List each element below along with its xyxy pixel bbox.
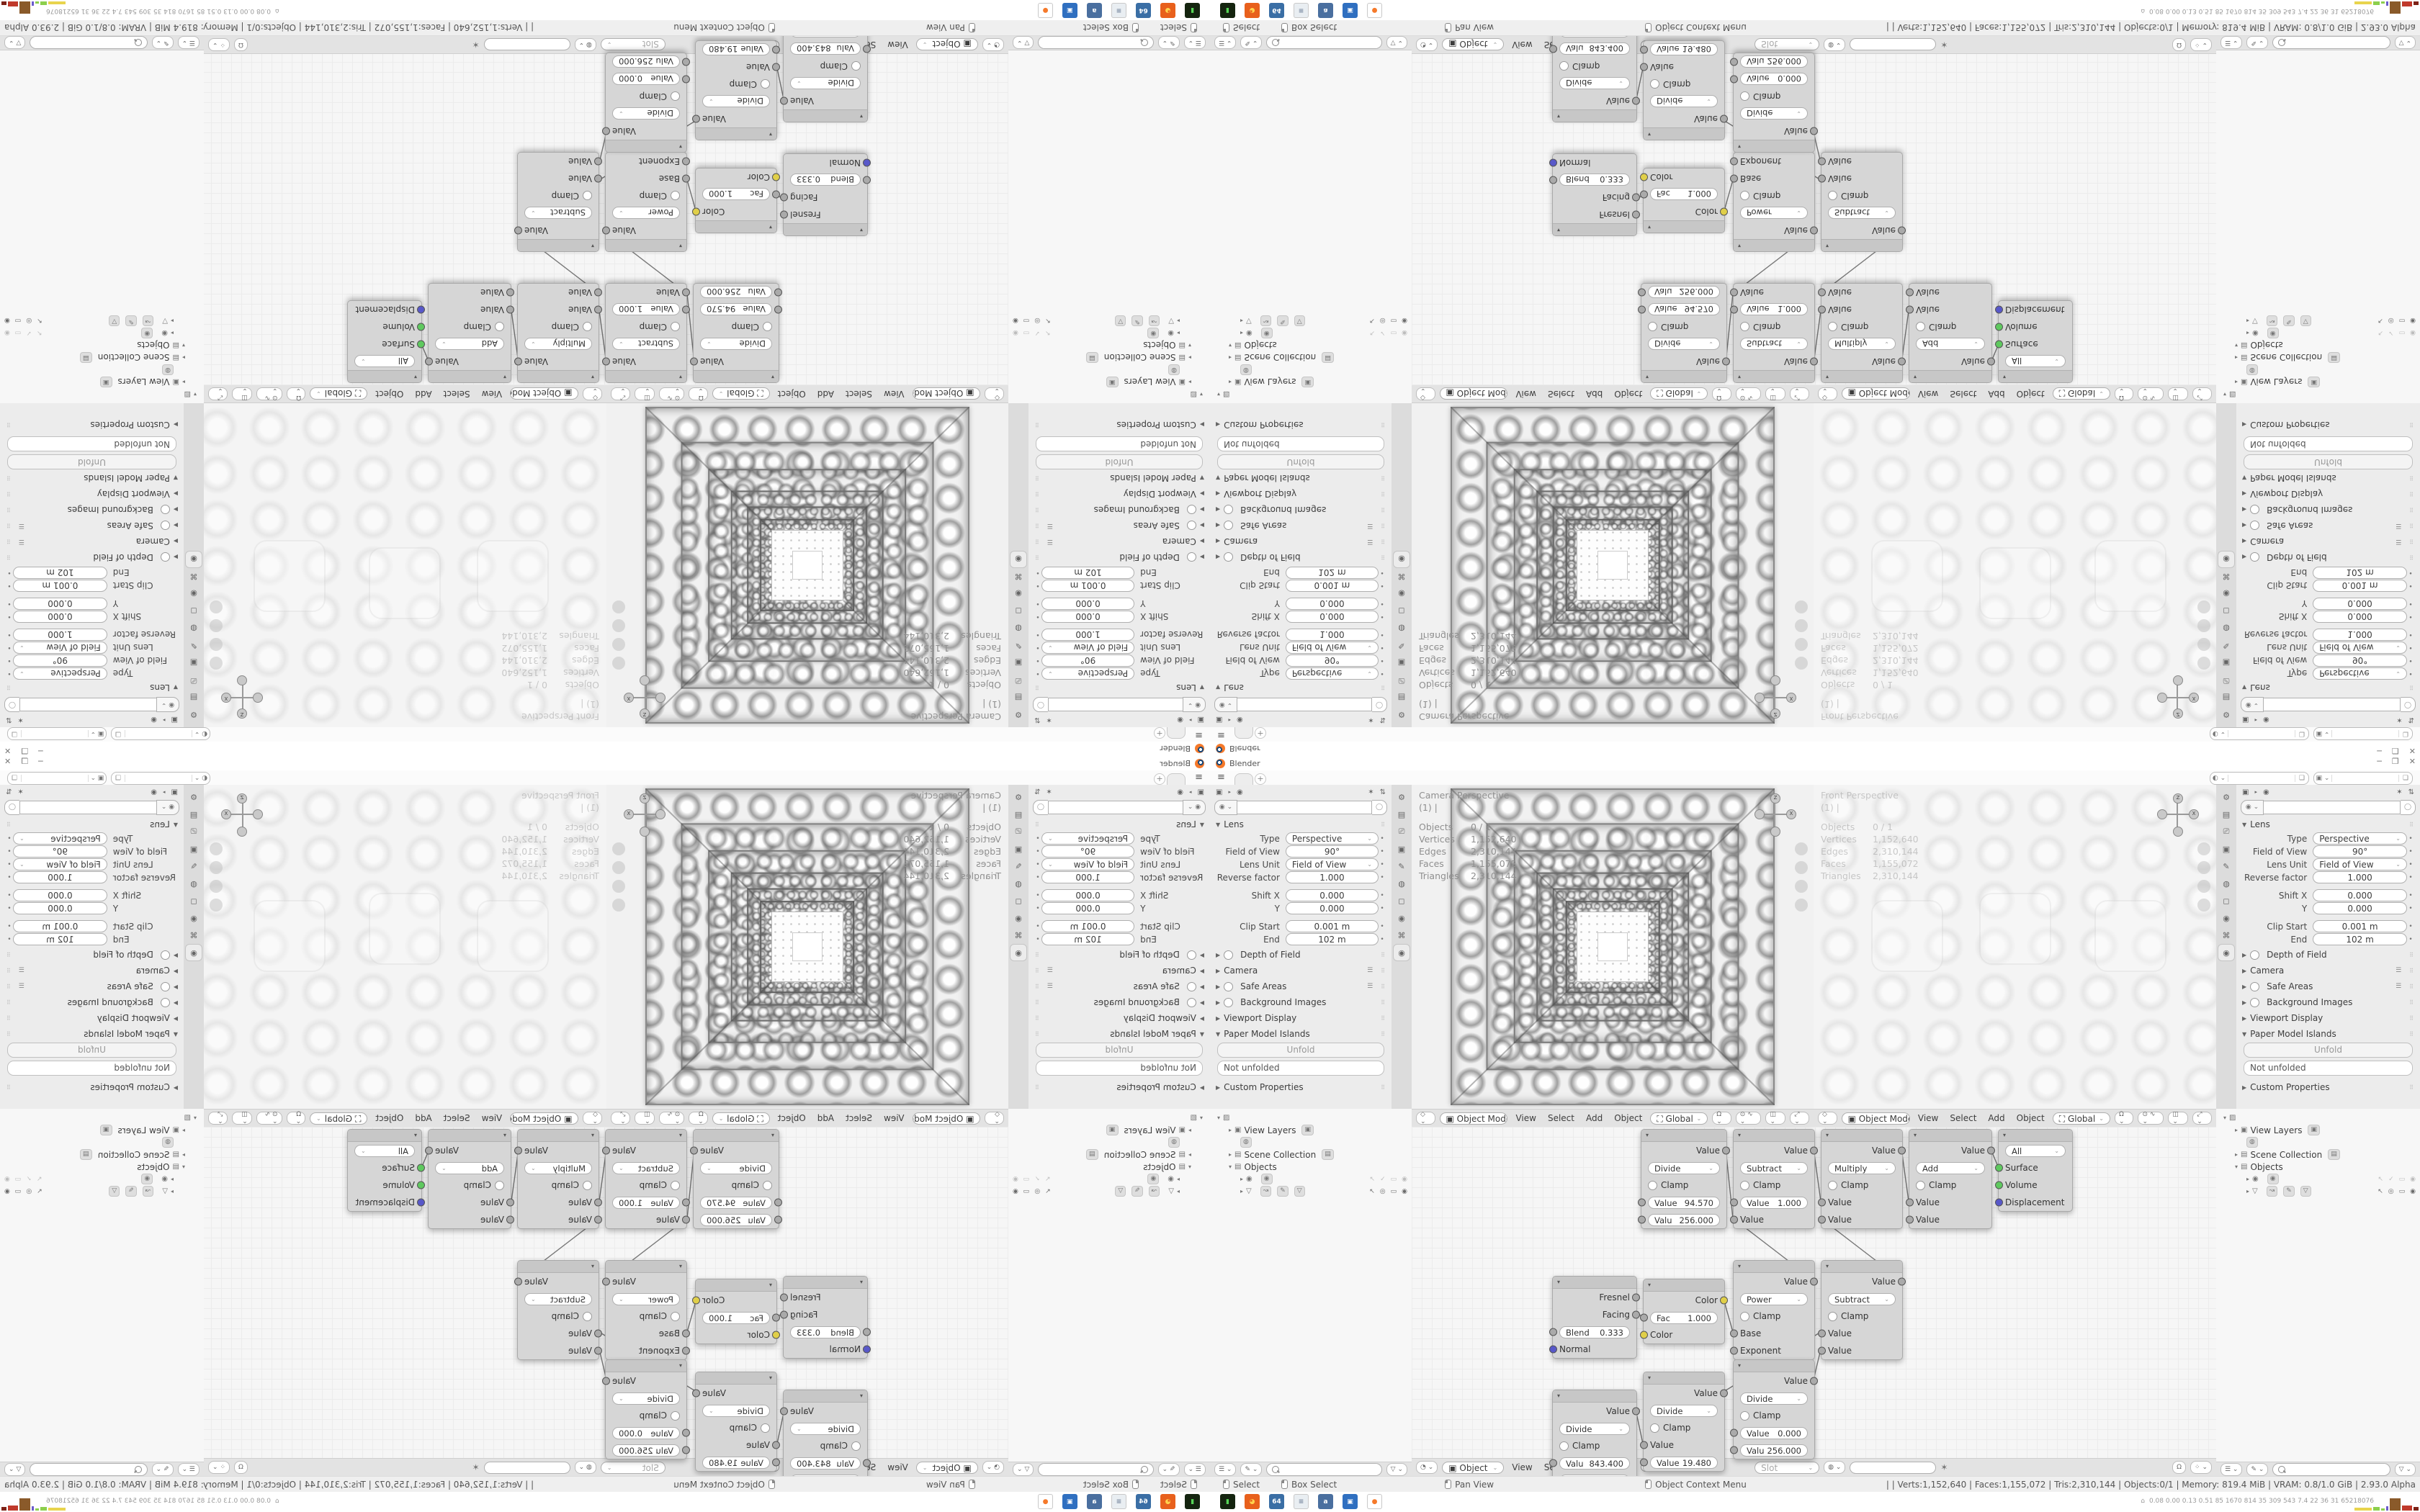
- panel-paper-model-islands[interactable]: ▼Paper Model Islands⠿: [1210, 471, 1391, 487]
- floppy64-icon[interactable]: 64: [1269, 3, 1284, 18]
- properties-tab-output[interactable]: ⎚: [1394, 824, 1410, 840]
- menu-view[interactable]: View: [1914, 1113, 1942, 1123]
- input-socket[interactable]: [594, 158, 602, 166]
- properties-tab-render[interactable]: ▤: [1394, 690, 1410, 706]
- input-socket[interactable]: [594, 175, 602, 183]
- number-field[interactable]: 0.000: [13, 889, 107, 901]
- interaction-mode-dropdown[interactable]: ▣ Object Mode⌄: [1440, 1112, 1508, 1125]
- panel-custom-properties[interactable]: ▶Custom Properties⠿: [1028, 418, 1210, 433]
- material-browse-dropdown[interactable]: ◍ ⌄: [575, 1461, 596, 1474]
- input-socket[interactable]: [1730, 1347, 1738, 1355]
- output-socket[interactable]: [1898, 1147, 1906, 1155]
- properties-tab-render[interactable]: ▤: [2218, 806, 2234, 822]
- camera-view-icon[interactable]: ⤢ ⌄: [1790, 387, 1809, 400]
- panel-camera[interactable]: ▶Camera☰⠿: [1210, 962, 1391, 978]
- outliner-row[interactable]: ▸◉◉↖✓▭◉: [1210, 1173, 1412, 1185]
- node-math-subtract-1[interactable]: ▾ValueSubtract⌄ClampValue1.000Value: [605, 1129, 687, 1229]
- terminal-icon[interactable]: ▮: [1220, 3, 1235, 18]
- clamp-checkbox[interactable]: [1916, 1181, 1925, 1190]
- number-field[interactable]: 102 m: [1286, 933, 1379, 945]
- input-socket[interactable]: [682, 175, 690, 183]
- menu-hamburger-icon[interactable]: ≡: [1191, 730, 1203, 739]
- transform-orientation-dropdown[interactable]: ⛶ Global⌄: [1650, 1112, 1708, 1125]
- properties-tab-render[interactable]: ▤: [1010, 806, 1026, 822]
- viewport-nav-buttons[interactable]: [612, 600, 625, 670]
- outliner-row[interactable]: ◍: [1210, 364, 1412, 376]
- number-field[interactable]: 102 m: [1041, 567, 1134, 579]
- shader-editor[interactable]: ▾ValueDivide⌄ClampValue94.570Valu256.000…: [204, 36, 1008, 385]
- input-socket[interactable]: [682, 1330, 690, 1338]
- clamp-checkbox[interactable]: [1648, 1181, 1657, 1190]
- outliner-row[interactable]: ▾▤Objects: [0, 1161, 204, 1173]
- properties-tab-constraints[interactable]: ⌘: [1010, 927, 1026, 943]
- properties-tab-output[interactable]: ⎚: [1010, 672, 1026, 688]
- node-invert[interactable]: ▾ColorFac1.000Color: [695, 168, 777, 233]
- snap-icon[interactable]: Ω ⌄: [2115, 1112, 2134, 1125]
- operation-dropdown[interactable]: Add⌄: [1916, 1162, 1985, 1174]
- output-socket[interactable]: [780, 211, 788, 219]
- viewport-camera[interactable]: Camera Perspective (1) | Objects0 / 1Ver…: [606, 785, 1008, 1127]
- clamp-checkbox[interactable]: [495, 323, 504, 332]
- properties-tab-view-layer[interactable]: ▣: [186, 655, 202, 671]
- panel-viewport-display[interactable]: ▶Viewport Display⠿: [0, 1009, 184, 1025]
- operation-dropdown[interactable]: Subtract⌄: [1828, 1293, 1896, 1305]
- properties-tab-constraints[interactable]: ⌘: [1394, 569, 1410, 585]
- number-field[interactable]: 102 m: [1286, 567, 1379, 579]
- input-socket[interactable]: [1730, 175, 1738, 183]
- operation-dropdown[interactable]: Subtract⌄: [612, 338, 680, 351]
- panel-camera[interactable]: ▶Camera☰⠿: [1028, 534, 1210, 550]
- output-socket[interactable]: [602, 1278, 610, 1286]
- workspace-tab[interactable]: [1167, 726, 1186, 739]
- value-field[interactable]: Fac1.000: [1650, 1312, 1718, 1324]
- operation-dropdown[interactable]: Divide⌄: [1740, 1392, 1808, 1405]
- clamp-checkbox[interactable]: [1740, 1181, 1749, 1190]
- minimize-button[interactable]: ─: [2377, 746, 2382, 755]
- node-math-multiply[interactable]: ▾ValueMultiply⌄ClampValueValue: [1821, 283, 1903, 383]
- properties-tab-object[interactable]: ◻: [1394, 603, 1410, 619]
- operation-dropdown[interactable]: Add⌄: [435, 338, 504, 351]
- outliner-row[interactable]: ▸◉◉↖✓▭◉: [2216, 1173, 2420, 1185]
- operation-dropdown[interactable]: Subtract⌄: [524, 1293, 592, 1305]
- material-browse-dropdown[interactable]: ◍ ⌄: [575, 38, 596, 51]
- number-field[interactable]: 102 m: [2313, 933, 2407, 945]
- outliner-row[interactable]: ▸◉◉↖✓▭◉: [0, 327, 204, 339]
- outliner-row[interactable]: ▸▽↝✎▽↖◎▭◉: [0, 1185, 204, 1197]
- input-socket[interactable]: [774, 289, 782, 297]
- operation-dropdown[interactable]: Power⌄: [612, 207, 680, 220]
- menu-object[interactable]: Object: [372, 389, 407, 399]
- dropdown[interactable]: Field of View⌄: [13, 642, 107, 654]
- transform-orientation-dropdown[interactable]: ⛶ Global⌄: [1650, 388, 1708, 400]
- clamp-checkbox[interactable]: [583, 192, 592, 201]
- outliner-row[interactable]: ▸▣View Layers▣: [0, 376, 204, 388]
- visibility-toggles[interactable]: ↖◎▭◉: [1013, 318, 1051, 325]
- input-socket[interactable]: [772, 1331, 780, 1339]
- value-field[interactable]: Value0.000: [1740, 1427, 1808, 1439]
- input-socket[interactable]: [1995, 341, 2003, 348]
- node-math-subtract-2[interactable]: ▾ValueSubtract⌄ClampValueValue: [517, 152, 599, 252]
- input-socket[interactable]: [594, 1330, 602, 1338]
- firefox-icon[interactable]: ◕: [1245, 3, 1260, 18]
- transform-orientation-dropdown[interactable]: ⛶ Global⌄: [310, 1112, 367, 1125]
- node-math-divide-2[interactable]: ▾ValueDivide⌄ClampValu843.400Valu256.000: [783, 1390, 868, 1476]
- operation-dropdown[interactable]: Subtract⌄: [1740, 1162, 1808, 1174]
- properties-tab-output[interactable]: ⎚: [2218, 672, 2234, 688]
- output-socket[interactable]: [1720, 1297, 1728, 1305]
- output-socket[interactable]: [1898, 227, 1906, 235]
- panel-background-images[interactable]: ▶Background Images⠿: [1028, 994, 1210, 1009]
- panel-background-images[interactable]: ▶Background Images⠿: [1210, 994, 1391, 1009]
- properties-tab-view-layer[interactable]: ▣: [1010, 841, 1026, 857]
- operation-dropdown[interactable]: Divide⌄: [1559, 1423, 1630, 1435]
- input-socket[interactable]: [1640, 46, 1648, 54]
- operation-dropdown[interactable]: Power⌄: [1740, 1293, 1808, 1305]
- properties-tab-constraints[interactable]: ⌘: [1010, 569, 1026, 585]
- input-socket[interactable]: [1730, 306, 1738, 314]
- panel-background-images[interactable]: ▶Background Images⠿: [1210, 503, 1391, 518]
- properties-tab-physics[interactable]: ◉: [1394, 586, 1410, 602]
- menu-view[interactable]: View: [884, 40, 911, 50]
- camera-view-icon[interactable]: ⤢ ⌄: [611, 387, 630, 400]
- filter-icon[interactable]: ⇅: [1380, 788, 1386, 796]
- panel-toggle[interactable]: [1187, 505, 1196, 515]
- visibility-toggles[interactable]: ↖◎▭◉: [1369, 318, 1407, 325]
- panel-depth-of-field[interactable]: ▶Depth of Field⠿: [0, 550, 184, 566]
- properties-tab-output[interactable]: ⎚: [1394, 672, 1410, 688]
- number-field[interactable]: 1.000: [1041, 629, 1134, 641]
- transform-orientation-dropdown[interactable]: ⛶ Global⌄: [2053, 1112, 2110, 1125]
- input-socket[interactable]: [1638, 289, 1646, 297]
- menu-object[interactable]: Object: [2013, 1113, 2048, 1123]
- value-field[interactable]: Valu256.000: [700, 1214, 772, 1226]
- filter-by-dropdown[interactable]: ✎ ⌄: [1240, 37, 1262, 50]
- output-socket[interactable]: [602, 1377, 610, 1385]
- outliner-row[interactable]: ▸◉◉↖✓▭◉: [1008, 327, 1210, 339]
- input-socket[interactable]: [863, 1328, 871, 1336]
- panel-menu-icon[interactable]: ☰: [2396, 967, 2401, 974]
- outliner-row[interactable]: ▾▨: [2216, 1112, 2420, 1124]
- viewport-front[interactable]: Front Perspective (1) | Objects0 / 1Vert…: [204, 785, 606, 1127]
- clamp-checkbox[interactable]: [763, 1181, 772, 1190]
- input-socket[interactable]: [417, 1199, 425, 1207]
- clamp-checkbox[interactable]: [1828, 1312, 1837, 1321]
- value-field[interactable]: Value94.570: [700, 304, 772, 316]
- node-invert[interactable]: ▾ColorFac1.000Color: [1643, 1279, 1725, 1344]
- shader-editor[interactable]: ▾ValueDivide⌄ClampValue94.570Valu256.000…: [1412, 36, 2216, 385]
- panel-viewport-display[interactable]: ▶Viewport Display⠿: [1028, 487, 1210, 503]
- unfold-button[interactable]: Unfold: [2244, 454, 2413, 469]
- viewport-nav-buttons[interactable]: [1795, 600, 1808, 670]
- operation-dropdown[interactable]: Subtract⌄: [524, 207, 592, 220]
- interaction-mode-dropdown[interactable]: ▣ Object Mode⌄: [913, 388, 981, 400]
- slot-dropdown[interactable]: Slot⌄: [601, 1462, 665, 1474]
- node-math-divide-3[interactable]: ▾ValueDivide⌄ClampValueValue19.480: [1643, 40, 1725, 140]
- outliner-row[interactable]: ▾▤Objects: [1210, 339, 1412, 351]
- properties-tab-physics[interactable]: ◉: [1394, 910, 1410, 926]
- pin-icon[interactable]: ✶: [2396, 788, 2402, 796]
- shader-editor[interactable]: ▾ValueDivide⌄ClampValue94.570Valu256.000…: [204, 1127, 1008, 1476]
- outliner-row[interactable]: ▾▤Objects: [2216, 339, 2420, 351]
- display-mode-dropdown[interactable]: ☰ ⌄: [1184, 1463, 1206, 1476]
- navigation-gizmo[interactable]: Z X: [625, 677, 665, 717]
- outliner-row[interactable]: ▸▤Scene Collection▤: [1210, 351, 1412, 364]
- panel-paper-model-islands[interactable]: ▼Paper Model Islands⠿: [0, 471, 184, 487]
- node-math-subtract-2[interactable]: ▾ValueSubtract⌄ClampValueValue: [1821, 1260, 1903, 1360]
- menu-object[interactable]: Object: [774, 389, 810, 399]
- panel-paper-model-islands[interactable]: ▼Paper Model Islands⠿: [2236, 1025, 2420, 1041]
- number-field[interactable]: 1.000: [13, 871, 107, 883]
- input-socket[interactable]: [1549, 1459, 1557, 1467]
- outliner-search-input[interactable]: [2272, 37, 2390, 50]
- unfold-button[interactable]: Unfold: [1036, 454, 1203, 469]
- output-socket[interactable]: [1810, 1377, 1818, 1385]
- value-field[interactable]: Valu256.000: [1648, 1214, 1720, 1226]
- output-socket[interactable]: [1722, 358, 1730, 366]
- output-socket[interactable]: [1720, 1390, 1728, 1398]
- node-math-power[interactable]: ▾ValuePower⌄ClampBaseExponent: [605, 152, 687, 252]
- output-socket[interactable]: [1632, 1408, 1640, 1416]
- filter-funnel-dropdown[interactable]: ▽ ⌄: [1013, 37, 1034, 50]
- operation-dropdown[interactable]: Add⌄: [435, 1162, 504, 1174]
- terminal-icon[interactable]: ▮: [1185, 1494, 1200, 1509]
- panel-lens[interactable]: ▼Lens⠿: [2236, 680, 2420, 696]
- dropdown[interactable]: Field of View⌄: [1041, 642, 1134, 654]
- restore-button[interactable]: ❐: [2392, 757, 2399, 766]
- camera-id-block[interactable]: ◉ ⌄◯: [2241, 698, 2416, 711]
- viewport-nav-buttons[interactable]: [2197, 842, 2210, 912]
- outliner-row[interactable]: ▾▤Objects: [0, 339, 204, 351]
- node-math-subtract-1[interactable]: ▾ValueSubtract⌄ClampValue1.000Value: [605, 283, 687, 383]
- filter-funnel-dropdown[interactable]: ▽ ⌄: [4, 1463, 25, 1476]
- proportional-edit-icon[interactable]: ⊙ ∿ ⌄: [2138, 1112, 2164, 1125]
- shader-mode-dropdown[interactable]: ▣ Object⌄: [1442, 39, 1504, 51]
- outliner-row[interactable]: ◍: [1210, 1136, 1412, 1148]
- outliner-row[interactable]: ▸▣View Layers▣: [1008, 376, 1210, 388]
- input-socket[interactable]: [506, 289, 514, 297]
- input-socket[interactable]: [772, 1441, 780, 1449]
- node-math-divide-1[interactable]: ▾ValueDivide⌄ClampValue94.570Valu256.000: [693, 1129, 779, 1229]
- value-field[interactable]: Value1.000: [1740, 1197, 1808, 1209]
- input-socket[interactable]: [417, 1182, 425, 1189]
- snap-target-dropdown[interactable]: ⁘ ⌄: [208, 1461, 230, 1474]
- panel-depth-of-field[interactable]: ▶Depth of Field⠿: [2236, 946, 2420, 962]
- value-field[interactable]: Valu843.400: [790, 43, 861, 55]
- value-field[interactable]: Value1.000: [612, 1197, 680, 1209]
- properties-tab-object[interactable]: ◻: [2218, 893, 2234, 909]
- dropdown[interactable]: Perspective⌄: [13, 832, 107, 845]
- pin-icon[interactable]: ✶: [472, 1462, 480, 1472]
- input-socket[interactable]: [1549, 1328, 1557, 1336]
- properties-tab-render[interactable]: ▤: [2218, 690, 2234, 706]
- mode-icon-dropdown[interactable]: ◇ ⌄: [1818, 1112, 1837, 1125]
- value-field[interactable]: Valu256.000: [612, 56, 680, 68]
- input-socket[interactable]: [1995, 1164, 2003, 1172]
- number-field[interactable]: 90°: [2313, 654, 2407, 667]
- overlays-icon[interactable]: ◫ ⌄: [1765, 387, 1785, 400]
- output-socket[interactable]: [1720, 115, 1728, 123]
- node-invert[interactable]: ▾ColorFac1.000Color: [695, 1279, 777, 1344]
- input-socket[interactable]: [682, 58, 690, 66]
- output-socket[interactable]: [602, 127, 610, 135]
- outliner-row[interactable]: ▸▽↝✎▽↖◎▭◉: [0, 315, 204, 327]
- terminal-icon[interactable]: ▮: [1220, 1494, 1235, 1509]
- interaction-mode-dropdown[interactable]: ▣ Object Mode⌄: [1842, 1112, 1910, 1125]
- panel-menu-icon[interactable]: ☰: [19, 983, 24, 990]
- dropdown[interactable]: Perspective⌄: [1286, 667, 1379, 680]
- value-field[interactable]: Value0.000: [612, 1427, 680, 1439]
- properties-tab-scene[interactable]: ✎: [1394, 638, 1410, 654]
- display-mode-dropdown[interactable]: ☰ ⌄: [1214, 37, 1236, 50]
- menu-hamburger-icon[interactable]: ≡: [1191, 773, 1203, 782]
- output-socket[interactable]: [1898, 1278, 1906, 1286]
- visibility-toggles[interactable]: ↖◎▭◉: [1369, 1188, 1407, 1195]
- node-math-divide-2[interactable]: ▾ValueDivide⌄ClampValu843.400Valu256.000: [783, 36, 868, 122]
- shader-mode-dropdown[interactable]: ▣ Object⌄: [1442, 1462, 1504, 1474]
- number-field[interactable]: 0.000: [13, 611, 107, 623]
- output-socket[interactable]: [780, 1408, 788, 1416]
- menu-hamburger-icon[interactable]: ≡: [1217, 730, 1229, 739]
- transform-orientation-dropdown[interactable]: ⛶ Global⌄: [2053, 388, 2110, 400]
- camera-view-icon[interactable]: ⤢ ⌄: [2192, 1112, 2212, 1125]
- outliner-row[interactable]: ◍: [2216, 364, 2420, 376]
- number-field[interactable]: 0.001 m: [2313, 580, 2407, 592]
- properties-tab-camera-data[interactable]: ◉: [1010, 945, 1026, 960]
- panel-safe-areas[interactable]: ▶Safe Areas☰⠿: [1028, 978, 1210, 994]
- output-socket[interactable]: [1810, 1278, 1818, 1286]
- properties-tab-tool[interactable]: ⚙: [2218, 707, 2234, 723]
- number-field[interactable]: 1.000: [1286, 629, 1379, 641]
- menu-add[interactable]: Add: [411, 389, 435, 399]
- node-math-divide-4[interactable]: ▾ValueDivide⌄ClampValue0.000Valu256.000: [605, 53, 687, 153]
- navigation-gizmo[interactable]: Z X: [2157, 677, 2197, 717]
- camera-view-icon[interactable]: ⤢ ⌄: [611, 1112, 630, 1125]
- node-layer-weight[interactable]: ▾FresnelFacingBlend0.333Normal: [783, 1276, 868, 1359]
- filter-funnel-dropdown[interactable]: ▽ ⌄: [2395, 37, 2416, 50]
- number-field[interactable]: 0.000: [13, 598, 107, 610]
- output-socket[interactable]: [425, 1147, 433, 1155]
- node-math-divide-3[interactable]: ▾ValueDivide⌄ClampValueValue19.480: [695, 40, 777, 140]
- viewport-nav-buttons[interactable]: [210, 600, 223, 670]
- minimize-button[interactable]: ─: [2377, 757, 2382, 766]
- panel-depth-of-field[interactable]: ▶Depth of Field⠿: [1210, 550, 1391, 566]
- operation-dropdown[interactable]: Multiply⌄: [524, 338, 592, 351]
- node-material-output[interactable]: ▾All⌄SurfaceVolumeDisplacement: [347, 1129, 422, 1212]
- clamp-checkbox[interactable]: [1740, 192, 1749, 201]
- menu-object[interactable]: Object: [1610, 1113, 1646, 1123]
- outliner-row[interactable]: ▸▽↝✎▽↖◎▭◉: [2216, 315, 2420, 327]
- filter-icon[interactable]: ⇅: [1034, 788, 1040, 796]
- close-button[interactable]: ✕: [4, 746, 11, 755]
- node-math-subtract-1[interactable]: ▾ValueSubtract⌄ClampValue1.000Value: [1733, 1129, 1815, 1229]
- properties-tab-tool[interactable]: ⚙: [1010, 707, 1026, 723]
- dropdown[interactable]: Perspective⌄: [1286, 832, 1379, 845]
- firefox-icon[interactable]: ◕: [1160, 3, 1175, 18]
- number-field[interactable]: 0.000: [1286, 598, 1379, 610]
- output-socket[interactable]: [1632, 211, 1640, 219]
- number-field[interactable]: 0.000: [13, 902, 107, 914]
- material-name-field[interactable]: [484, 39, 570, 51]
- operation-dropdown[interactable]: Divide⌄: [1559, 78, 1630, 90]
- outliner-row[interactable]: ◍: [2216, 1136, 2420, 1148]
- clamp-checkbox[interactable]: [1740, 92, 1749, 102]
- outliner-row[interactable]: ◍: [0, 364, 204, 376]
- panel-lens[interactable]: ▼Lens⠿: [1028, 816, 1210, 832]
- proportional-edit-icon[interactable]: ⊙ ∿ ⌄: [1736, 1112, 1762, 1125]
- visibility-toggles[interactable]: ↖✓▭◉: [1013, 330, 1050, 337]
- clamp-checkbox[interactable]: [583, 1181, 592, 1190]
- properties-tab-world[interactable]: ◍: [186, 876, 202, 891]
- unfold-button[interactable]: Unfold: [1217, 454, 1384, 469]
- camera-id-block[interactable]: ◉ ⌄◯: [1214, 698, 1387, 711]
- filter-icon[interactable]: ⇅: [6, 716, 12, 724]
- input-socket[interactable]: [1640, 1441, 1648, 1449]
- panel-toggle[interactable]: [161, 950, 170, 960]
- operation-dropdown[interactable]: Power⌄: [1740, 207, 1808, 220]
- viewport-camera[interactable]: Camera Perspective (1) | Objects0 / 1Ver…: [1412, 785, 1814, 1127]
- clamp-checkbox[interactable]: [761, 80, 770, 89]
- panel-depth-of-field[interactable]: ▶Depth of Field⠿: [2236, 550, 2420, 566]
- input-socket[interactable]: [417, 1164, 425, 1172]
- navigation-gizmo[interactable]: Z X: [625, 795, 665, 835]
- output-socket[interactable]: [514, 227, 522, 235]
- panel-menu-icon[interactable]: ☰: [1047, 983, 1053, 990]
- shader-type-icon-dropdown[interactable]: ◔ ⌄: [982, 1461, 1004, 1474]
- outliner-row[interactable]: ▾▤Objects: [2216, 1161, 2420, 1173]
- clamp-checkbox[interactable]: [1648, 323, 1657, 332]
- camera-view-icon[interactable]: ⤢ ⌄: [1790, 1112, 1809, 1125]
- transform-orientation-dropdown[interactable]: ⛶ Global⌄: [712, 388, 770, 400]
- input-socket[interactable]: [863, 1459, 871, 1467]
- number-field[interactable]: 0.001 m: [1286, 920, 1379, 932]
- input-socket[interactable]: [1549, 159, 1557, 167]
- proportional-edit-icon[interactable]: ⊙ ∿ ⌄: [2138, 387, 2164, 400]
- panel-toggle[interactable]: [1224, 950, 1233, 960]
- clamp-checkbox[interactable]: [1828, 323, 1837, 332]
- value-field[interactable]: Valu256.000: [790, 36, 861, 38]
- input-socket[interactable]: [772, 46, 780, 54]
- visibility-toggles[interactable]: ↖◎▭◉: [4, 318, 42, 325]
- panel-background-images[interactable]: ▶Background Images⠿: [0, 503, 184, 518]
- outliner-row[interactable]: ▸▤Scene Collection▤: [1210, 1148, 1412, 1161]
- operation-dropdown[interactable]: Divide⌄: [700, 338, 772, 351]
- input-socket[interactable]: [1730, 1199, 1738, 1207]
- filter-by-dropdown[interactable]: ✎ ⌄: [1158, 1463, 1180, 1476]
- panel-menu-icon[interactable]: ☰: [19, 522, 24, 529]
- output-socket[interactable]: [1987, 358, 1995, 366]
- number-field[interactable]: 0.001 m: [1041, 920, 1134, 932]
- filter-by-dropdown[interactable]: ✎ ⌄: [1240, 1463, 1262, 1476]
- outliner-row[interactable]: ▸▣View Layers▣: [1210, 376, 1412, 388]
- properties-tab-camera-data[interactable]: ◉: [2218, 945, 2234, 960]
- viewport-front[interactable]: Front Perspective (1) | Objects0 / 1Vert…: [1814, 385, 2216, 727]
- node-math-add[interactable]: ▾ValueAdd⌄ClampValueValue: [428, 283, 511, 383]
- number-field[interactable]: 90°: [1041, 654, 1134, 667]
- panel-menu-icon[interactable]: ☰: [19, 538, 24, 545]
- node-math-divide-4[interactable]: ▾ValueDivide⌄ClampValue0.000Valu256.000: [1733, 1359, 1815, 1459]
- output-socket[interactable]: [1810, 358, 1818, 366]
- properties-tab-world[interactable]: ◍: [1010, 876, 1026, 891]
- operation-dropdown[interactable]: Add⌄: [1916, 338, 1985, 351]
- node-layer-weight[interactable]: ▾FresnelFacingBlend0.333Normal: [1552, 1276, 1637, 1359]
- navigation-gizmo[interactable]: Z X: [1754, 795, 1795, 835]
- input-socket[interactable]: [682, 1199, 690, 1207]
- input-socket[interactable]: [1818, 1347, 1826, 1355]
- node-math-power[interactable]: ▾ValuePower⌄ClampBaseExponent: [1733, 1260, 1815, 1360]
- panel-toggle[interactable]: [2250, 505, 2259, 515]
- firefox-icon[interactable]: ◕: [1245, 1494, 1260, 1509]
- outliner-row[interactable]: ▾▨: [1210, 1112, 1412, 1124]
